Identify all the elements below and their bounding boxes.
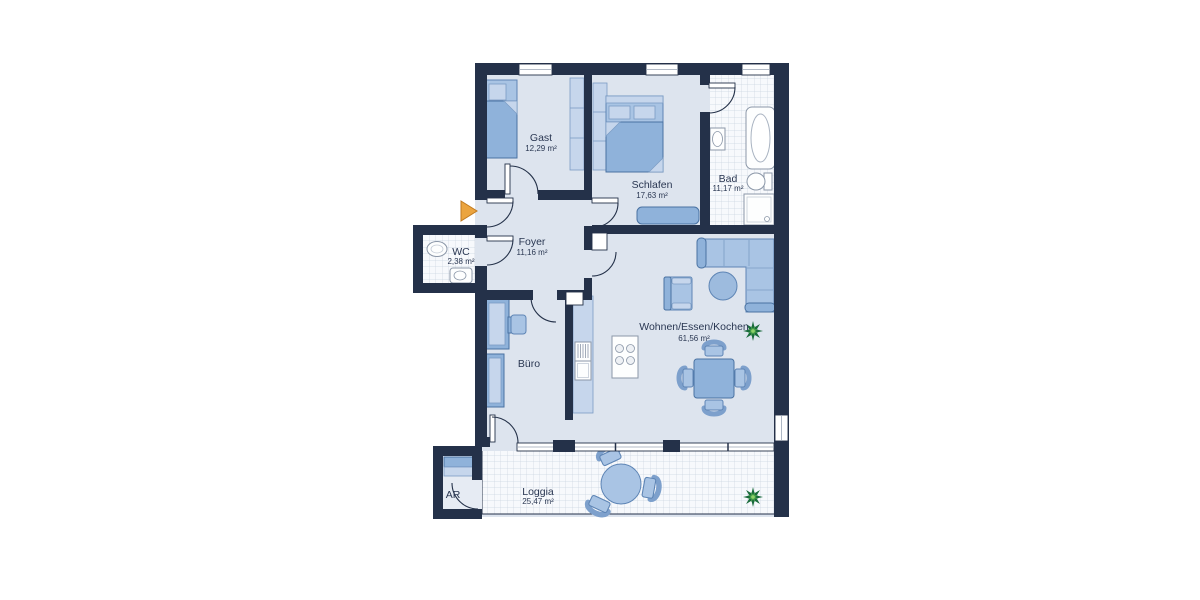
chair-icon <box>704 400 724 414</box>
window-icon <box>742 64 770 75</box>
toilet-icon <box>747 173 772 190</box>
chair-icon <box>735 368 749 388</box>
coffee-table-icon <box>709 272 737 300</box>
room-label-wohnen: Wohnen/Essen/Kochen <box>639 321 749 333</box>
shower-icon <box>744 194 774 225</box>
bathtub-icon <box>746 107 775 169</box>
window-icon <box>775 415 788 441</box>
guest-bed-icon <box>486 80 517 158</box>
kitchen-counter-icon <box>573 296 593 413</box>
room-area-gast: 12,29 m² <box>525 144 557 153</box>
bench-icon <box>637 207 699 224</box>
floorplan-svg: Gast 12,29 m² Schlafen 17,63 m² Bad 11,1… <box>0 0 1200 600</box>
loggia-table-icon <box>601 464 641 504</box>
window-icon <box>646 64 678 75</box>
room-area-schlafen: 17,63 m² <box>636 191 668 200</box>
office-couch-icon <box>486 354 504 407</box>
armchair-icon <box>664 277 692 310</box>
chair-icon <box>642 476 661 500</box>
room-label-gast: Gast <box>530 132 552 144</box>
wardrobe-icon <box>570 78 584 170</box>
window-icon <box>519 64 552 75</box>
chair-icon <box>679 368 693 388</box>
floor-plan-canvas: Gast 12,29 m² Schlafen 17,63 m² Bad 11,1… <box>0 0 1200 600</box>
dining-table-icon <box>694 359 734 398</box>
mullion-post <box>663 440 680 452</box>
room-label-foyer: Foyer <box>519 236 546 248</box>
room-area-wohnen: 61,56 m² <box>678 334 710 343</box>
room-area-bad: 11,17 m² <box>713 184 744 193</box>
office-chair-icon <box>508 315 526 334</box>
toilet-icon <box>450 268 472 283</box>
desk-icon <box>486 299 509 349</box>
plant-icon <box>743 487 763 507</box>
room-area-wc: 2,38 m² <box>447 257 474 266</box>
washbasin-icon <box>427 242 447 257</box>
room-area-loggia: 25,47 m² <box>522 497 554 506</box>
room-area-foyer: 11,16 m² <box>517 248 548 257</box>
wardrobe-icon <box>593 83 607 170</box>
room-label-ar: AR <box>446 489 461 501</box>
mullion-post <box>553 440 575 452</box>
double-bed-icon <box>606 96 663 172</box>
room-label-schlafen: Schlafen <box>632 179 673 191</box>
room-label-buero: Büro <box>518 358 540 370</box>
chair-icon <box>704 342 724 356</box>
cooktop-icon <box>612 336 638 378</box>
entrance-arrow-icon <box>461 201 477 221</box>
washbasin-icon <box>710 128 725 150</box>
